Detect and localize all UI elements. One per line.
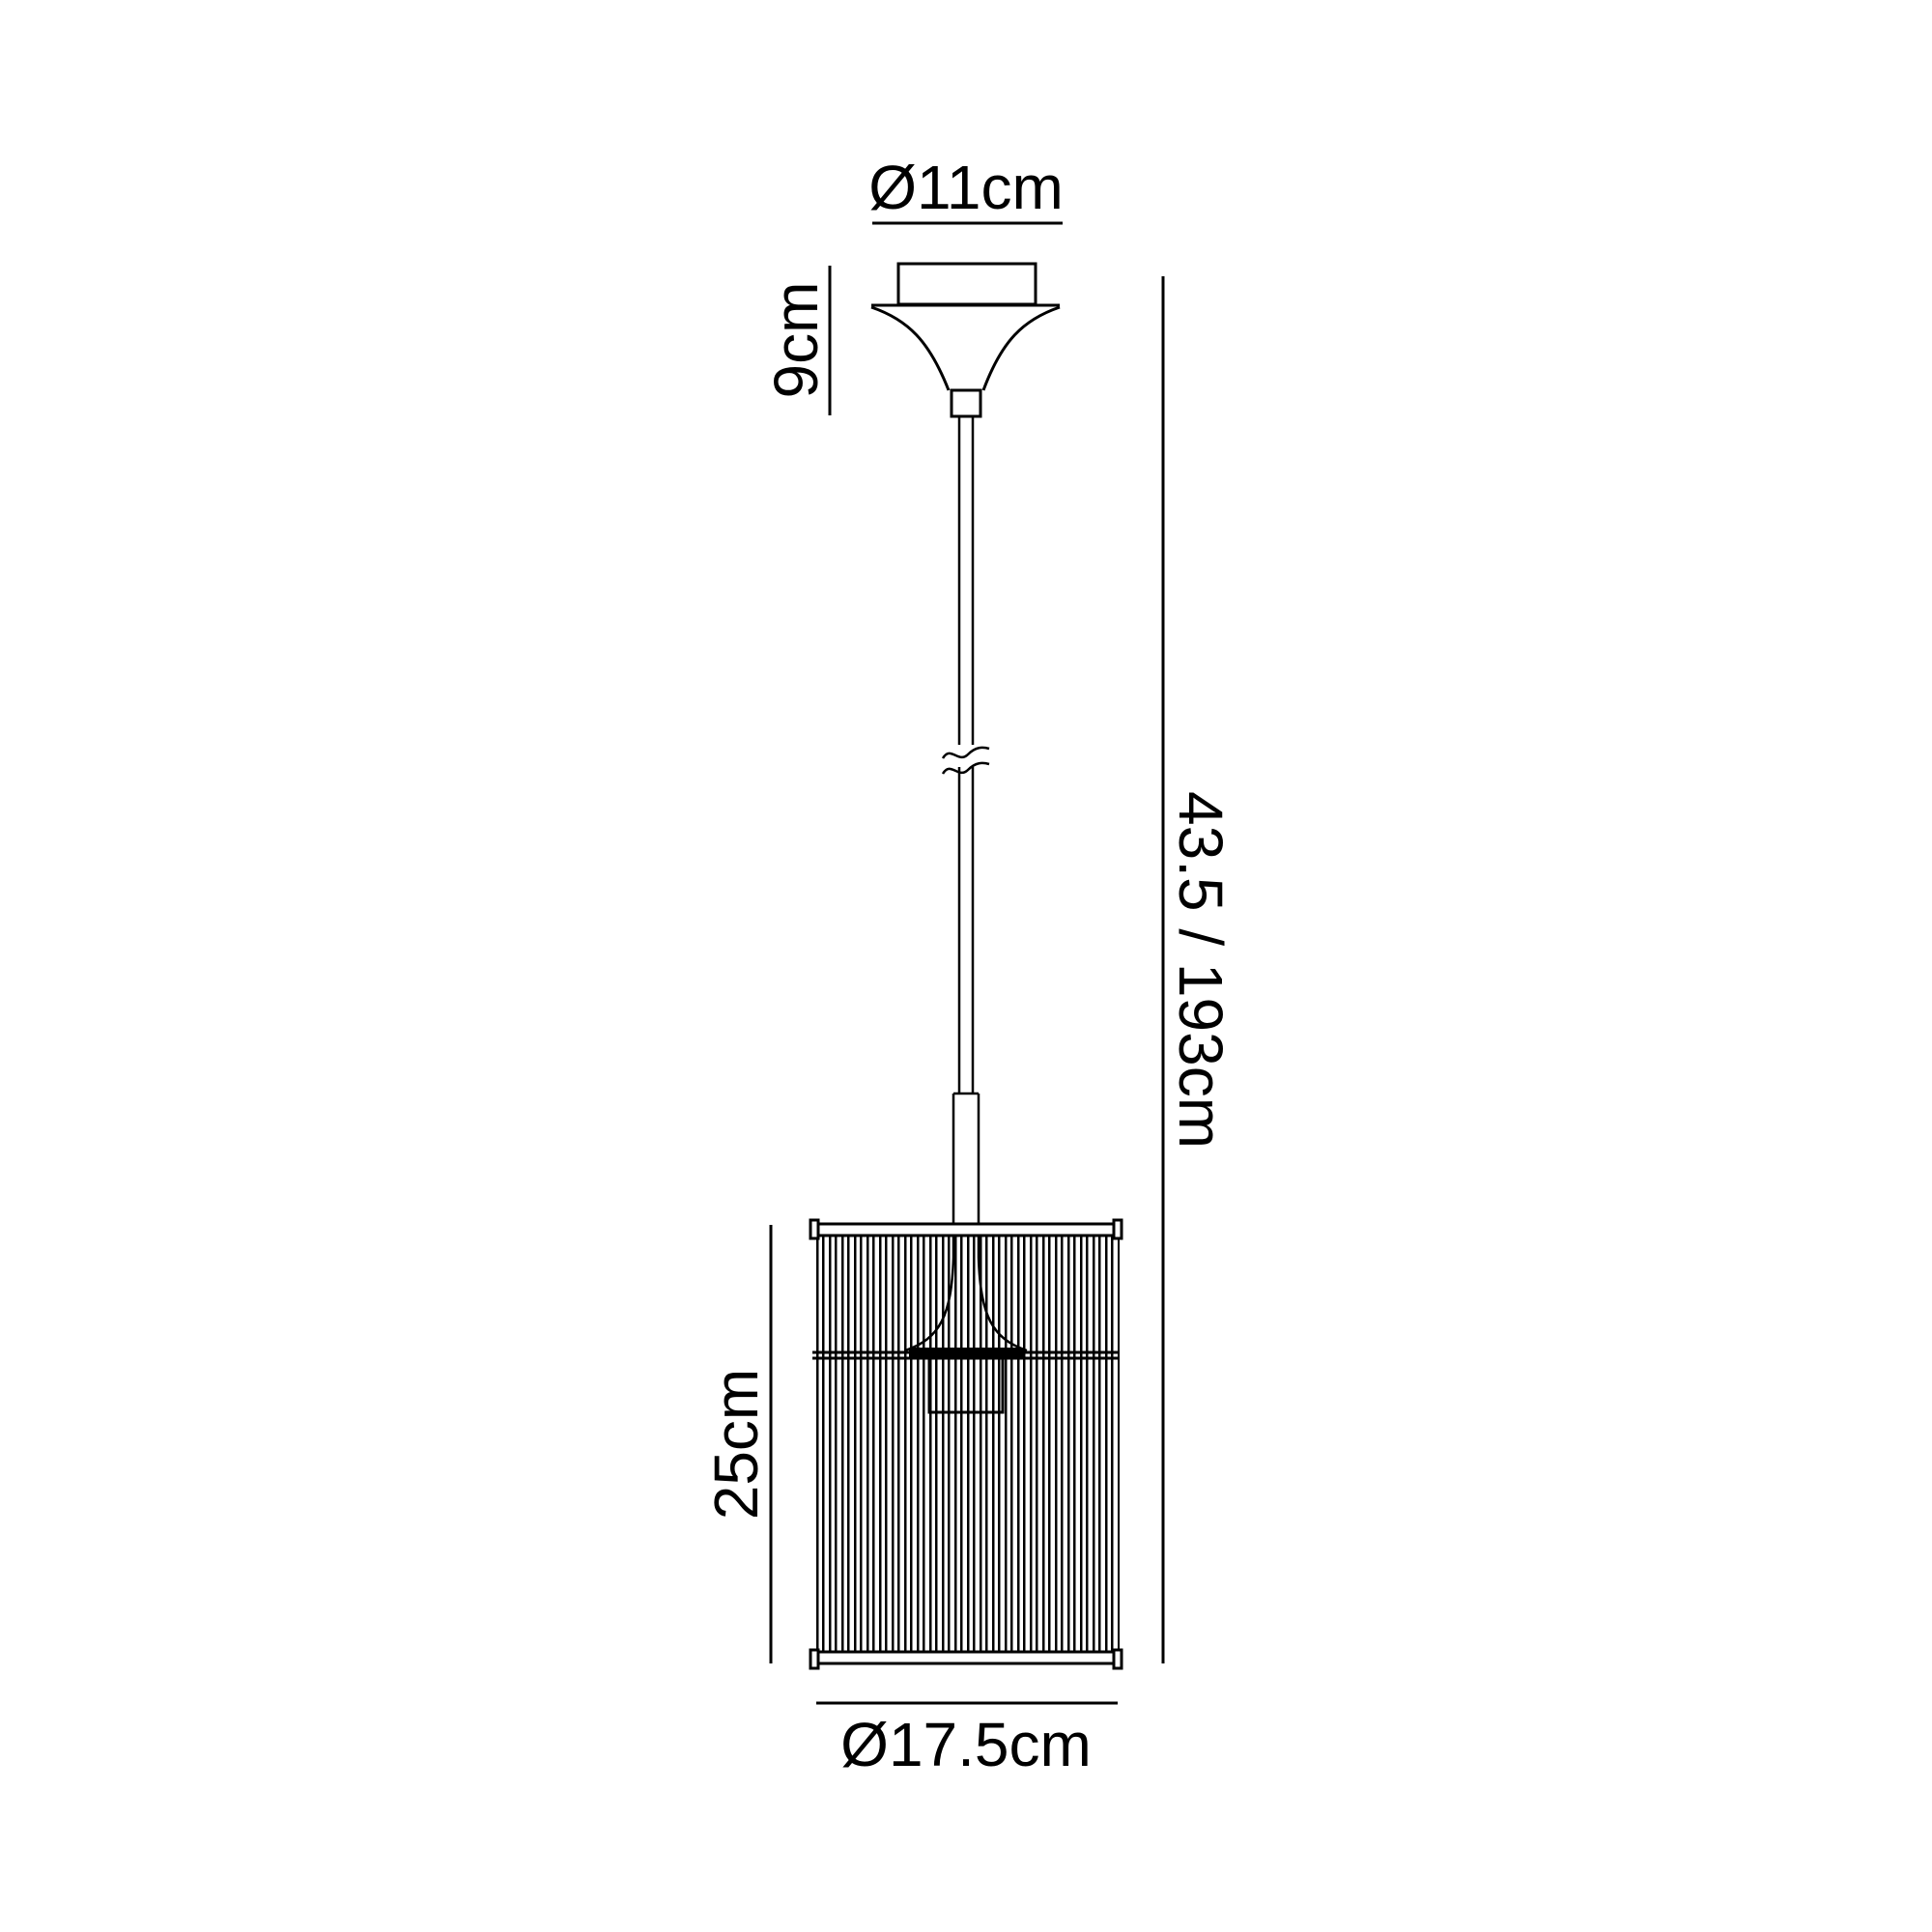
- ceiling-plate: [898, 264, 1036, 304]
- shade-bottom-rim: [812, 1652, 1122, 1663]
- break-symbol-lower: [943, 763, 989, 774]
- canopy-socket: [952, 390, 980, 416]
- shade-vertical-rods: [816, 1236, 1120, 1652]
- bottom-rim-cap-left: [810, 1650, 818, 1668]
- top-rim-cap-left: [810, 1220, 818, 1238]
- total-drop-label: 43.5 / 193cm: [1166, 791, 1236, 1149]
- bottom-rim-cap-right: [1114, 1650, 1122, 1668]
- ceiling-canopy: [871, 264, 1060, 416]
- dim-shade-diameter: Ø17.5cm: [816, 1703, 1118, 1779]
- dim-canopy-height: 9cm: [761, 266, 831, 415]
- canopy-diameter-label: Ø11cm: [868, 153, 1064, 222]
- top-rim-cap-right: [1114, 1220, 1122, 1238]
- shade-height-label: 25cm: [701, 1369, 771, 1520]
- shade-diameter-label: Ø17.5cm: [840, 1710, 1092, 1779]
- dim-total-drop: 43.5 / 193cm: [1163, 276, 1236, 1663]
- pendant-light-drawing: Ø11cm 9cm: [0, 0, 1932, 1932]
- suspension-rod: [943, 416, 989, 1258]
- dim-shade-height: 25cm: [701, 1225, 771, 1663]
- shade-top-rim: [812, 1224, 1122, 1236]
- break-symbol-upper: [943, 748, 989, 758]
- lamp-shade: [810, 1220, 1122, 1668]
- canopy-height-label: 9cm: [761, 282, 831, 399]
- dimension-diagram: Ø11cm 9cm: [0, 0, 1932, 1932]
- canopy-bell-right: [983, 307, 1060, 390]
- dim-canopy-diameter: Ø11cm: [868, 153, 1064, 223]
- canopy-bell-left: [871, 307, 949, 390]
